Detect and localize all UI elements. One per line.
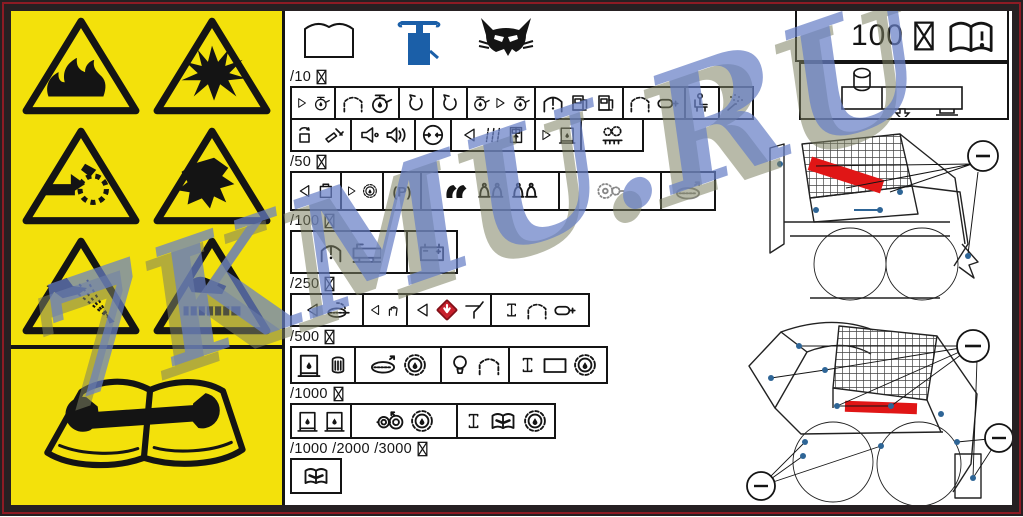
interval-icon-row [290, 230, 788, 274]
panel-separator-line [282, 11, 285, 505]
axle-manual-filter [456, 403, 556, 439]
clean-radiator [580, 118, 644, 152]
spray-icon [724, 90, 748, 116]
gloves-icon [441, 177, 471, 205]
interval-icon-row [290, 458, 788, 494]
oil-can-icon [368, 90, 394, 116]
hourglass-icon [324, 213, 335, 229]
canopy-icon [475, 351, 503, 379]
interval-icon-row [290, 293, 788, 327]
chaincase-oil [340, 171, 384, 211]
hydraulic-fluid-reservoir [290, 230, 408, 274]
hourglass-icon [316, 69, 327, 85]
interval-icon-row [290, 86, 788, 120]
oil-box-icon [557, 122, 577, 148]
maintenance-schedule-decal: /10/50(P)/100/250/500/1000/1000 /2000 /3… [0, 0, 1023, 516]
h-tank-icon [347, 238, 381, 266]
interval-label--50: /50 [290, 154, 788, 170]
bells-icon [473, 177, 505, 205]
sprocket-icon [594, 177, 626, 205]
fire-hazard-triangle-icon [20, 15, 142, 117]
ibeam-icon [463, 407, 485, 435]
fuel-level [534, 86, 624, 120]
axle-air-cleaner [490, 293, 590, 327]
oil-box-icon [295, 407, 320, 435]
fluid-injection-hazard-warning [20, 235, 142, 342]
inspect-icon [459, 122, 479, 148]
schedule-header [288, 11, 788, 67]
hand-part-icon [384, 297, 403, 323]
svg-text:(P): (P) [393, 183, 412, 199]
bin-arrows-icon [296, 122, 320, 148]
hot-surface-hazard-triangle-icon [151, 235, 273, 337]
seat-icon [690, 90, 714, 116]
horn-icon [357, 122, 381, 148]
coolant-level [398, 86, 434, 120]
see-service-manual [290, 458, 342, 494]
axle-wheel-filter [350, 403, 458, 439]
axle-box-filter [508, 346, 608, 384]
fill-hydraulic-oil [534, 118, 582, 152]
canopy-icon [340, 90, 366, 116]
interval-label-text: /1000 [290, 386, 328, 402]
interval-label--10: /10 [290, 69, 788, 85]
replace-oil-filter [290, 346, 356, 384]
door-icon [505, 122, 527, 148]
panels-icon [481, 122, 503, 148]
inspect-icon [412, 297, 432, 323]
clean-debris [290, 118, 352, 152]
jug-icon [438, 90, 462, 116]
gear-droplet-icon [571, 351, 599, 379]
track-tension [660, 171, 716, 211]
hourglass-icon [913, 20, 935, 52]
parking-icon: (P) [388, 177, 416, 205]
check-arrow-icon [295, 90, 310, 116]
canopy-icon [524, 297, 550, 323]
gear-droplet-icon [521, 407, 549, 435]
maintenance-schedule-panel: /10/50(P)/100/250/500/1000/1000 /2000 /3… [288, 11, 788, 505]
explosion-hazard-triangle-icon [151, 15, 273, 117]
coolant-fill [432, 86, 468, 120]
radiator-icon [598, 122, 626, 148]
skid-steer-upper-drawing [750, 126, 1014, 314]
gear-droplet-icon [361, 177, 379, 205]
horn-backup-alarm [350, 118, 416, 152]
crush-hazard-triangle-icon [151, 125, 273, 227]
tire-icon [420, 122, 446, 148]
bulb-icon [447, 351, 473, 379]
skid-steer-grease-points-upper [750, 126, 1014, 314]
oil-box-icon [322, 407, 347, 435]
battery-box-icon [315, 177, 337, 205]
interval-icon-row [290, 118, 788, 152]
book-small-icon [487, 407, 519, 435]
oil-transfer-check [466, 86, 536, 120]
muffler-icon [324, 297, 352, 323]
jug-icon [404, 90, 428, 116]
scraper-icon [322, 122, 346, 148]
hours-value: 100 [851, 19, 904, 53]
reservoir-drain-diagram [799, 62, 1009, 120]
inspect-panels-door [450, 118, 536, 152]
inspect-bobtach-wedge [406, 293, 492, 327]
oil-box-icon [295, 351, 323, 379]
hourglass-icon [316, 154, 327, 170]
canopy-excl-icon [317, 238, 345, 266]
interval-label--500: /500 [290, 329, 788, 345]
inspect-lift-arm [362, 293, 408, 327]
interval-icon-row [290, 346, 788, 384]
interval-icon-row: (P) [290, 171, 788, 211]
check-arrow-icon [539, 122, 555, 148]
hourglass-icon [333, 386, 344, 402]
check-engine-oil [290, 86, 336, 120]
hot-surface-hazard-warning [151, 235, 273, 342]
entanglement-hazard-triangle-icon [20, 125, 142, 227]
oil-can-icon [312, 90, 331, 116]
parking-brake-test: (P) [382, 171, 422, 211]
funnel-icon [462, 297, 486, 323]
read-service-manual-symbol [13, 351, 280, 503]
skid-steer-lower-drawing [741, 314, 1014, 512]
inspect-spark-arrestor [290, 293, 364, 327]
warning-panel [11, 11, 282, 505]
capsule-icon [552, 297, 578, 323]
entanglement-hazard-warning [20, 125, 142, 232]
interval-label-text: /100 [290, 213, 319, 229]
canopy-excl-icon [540, 90, 566, 116]
interval-label--100: /100 [290, 213, 788, 229]
interval-rows: /10/50(P)/100/250/500/1000/1000 /2000 /3… [288, 69, 788, 494]
track-icon [672, 177, 704, 205]
interval-label--250: /250 [290, 276, 788, 292]
grease-pivot-points [420, 171, 560, 211]
tire-pressure [414, 118, 452, 152]
engine-oil-level [334, 86, 400, 120]
inspect-icon [295, 177, 313, 205]
fluid-injection-hazard-triangle-icon [20, 235, 142, 337]
interval-icon-row [290, 403, 788, 439]
oil-can-icon [471, 90, 491, 116]
canopy-icon [627, 90, 653, 116]
drive-sprocket [558, 171, 662, 211]
interval-label--1000-2000-3000: /1000 /2000 /3000 [290, 441, 788, 457]
interval-label-text: /10 [290, 69, 311, 85]
interval-label-text: /500 [290, 329, 319, 345]
hourglass-icon [417, 441, 428, 457]
track-filter-service [354, 346, 442, 384]
interval-label-text: /1000 /2000 /3000 [290, 441, 412, 457]
replace-oils [290, 403, 352, 439]
hours-interval-box: 100 [795, 9, 1009, 62]
gear-droplet-icon [401, 351, 429, 379]
air-cleaner [622, 86, 686, 120]
fuel-pump-icon [594, 90, 618, 116]
skid-steer-grease-points-lower [741, 314, 1014, 512]
ibeam-icon [502, 297, 522, 323]
red-diamond-icon [434, 297, 460, 323]
bulb-cab-check [440, 346, 510, 384]
cylinder-filter-icon [325, 351, 351, 379]
box-icon [541, 351, 569, 379]
speaker-icon [383, 122, 409, 148]
inspect-battery-box [290, 171, 342, 211]
track-icon [367, 351, 399, 379]
fire-hazard-warning [20, 15, 142, 122]
panel-divider [11, 345, 282, 349]
ibeam-icon [517, 351, 539, 379]
seat-belt [684, 86, 720, 120]
manual-book-exclamation-icon [944, 14, 998, 58]
capsule-icon [655, 90, 681, 116]
bobcat-logo-icon [478, 15, 534, 59]
inspect-icon [367, 297, 382, 323]
axle-wheels-icon [372, 407, 406, 435]
hourglass-icon [324, 276, 335, 292]
service-manual-book-wrench-icon [27, 352, 267, 502]
operator-manual-book-icon [298, 15, 360, 63]
seat-bar-pivots [718, 86, 754, 120]
battery-icon [416, 238, 448, 266]
oil-can-icon [511, 90, 531, 116]
check-arrow-icon [345, 177, 359, 205]
interval-label-text: /250 [290, 276, 319, 292]
check-arrow-icon [493, 90, 509, 116]
book-small-icon [300, 462, 332, 490]
inspect-icon [302, 297, 322, 323]
fuel-pump-icon [568, 90, 592, 116]
warning-triangle-grid [15, 13, 278, 343]
gear-droplet-icon [408, 407, 436, 435]
battery-service [406, 230, 458, 274]
interval-label-text: /50 [290, 154, 311, 170]
explosion-hazard-warning [151, 15, 273, 122]
reservoir-drain-icon [806, 65, 1002, 117]
crush-hazard-warning [151, 125, 273, 232]
grease-gun-icon [396, 15, 442, 69]
bells-icon [507, 177, 539, 205]
hourglass-icon [324, 329, 335, 345]
interval-label--1000: /1000 [290, 386, 788, 402]
